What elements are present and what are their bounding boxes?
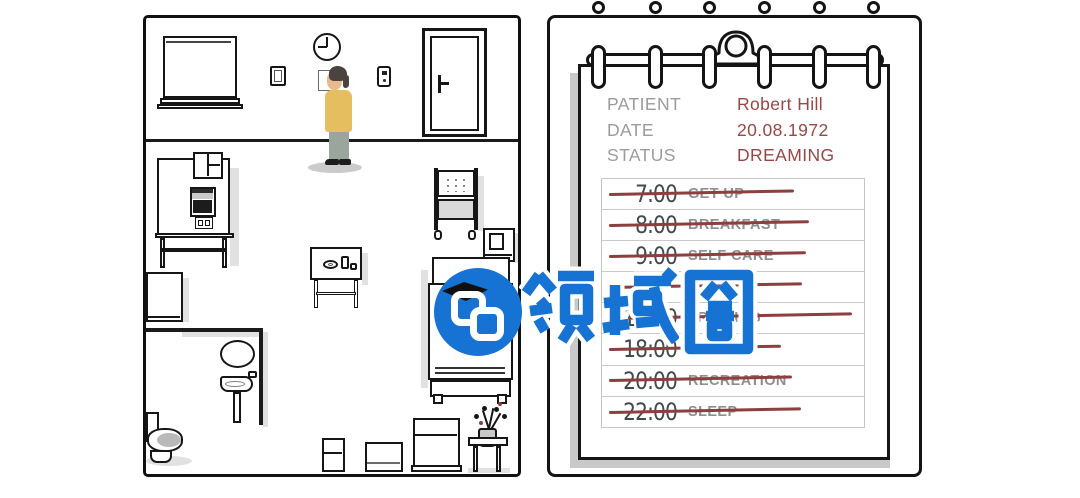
- binder-ring: [648, 45, 663, 89]
- toilet-base: [150, 450, 172, 463]
- stool-leg: [496, 446, 501, 472]
- stool-top: [468, 437, 508, 446]
- storage-box-wide[interactable]: [365, 442, 403, 472]
- board-shadow-bottom: [578, 460, 890, 468]
- box-line: [367, 462, 400, 464]
- machine-screen-unit[interactable]: [190, 187, 216, 217]
- binder-ring-top: [867, 1, 880, 14]
- small-item[interactable]: [350, 263, 357, 270]
- picture-frame-inner: [274, 70, 282, 82]
- cabinet-top-line: [415, 434, 457, 436]
- machine-screen: [193, 200, 212, 213]
- storage-box-small[interactable]: [322, 438, 345, 472]
- machine-button[interactable]: [198, 220, 204, 226]
- cup[interactable]: [341, 256, 349, 269]
- person-sweater: [325, 90, 352, 132]
- watermark-char-ling: [519, 260, 599, 360]
- binder-ring: [591, 45, 606, 89]
- nightstand-shadow: [515, 233, 518, 263]
- nightstand-drawer-line: [485, 254, 512, 256]
- patient-label: PATIENT: [607, 94, 737, 115]
- blanket-line: [435, 372, 505, 374]
- nightstand-frame: [489, 233, 504, 250]
- plant-leaf: [474, 414, 479, 419]
- watermark-char-quan: [679, 260, 759, 360]
- plant-leaf: [494, 407, 499, 412]
- side-table-crossbar: [316, 292, 356, 295]
- bathroom-mirror[interactable]: [220, 340, 255, 368]
- side-table[interactable]: [310, 247, 362, 280]
- machine-stand-crossbar: [162, 248, 225, 252]
- machine-button[interactable]: [205, 220, 211, 226]
- binder-ring: [866, 45, 881, 89]
- cart-wheel: [434, 230, 442, 240]
- status-value: DREAMING: [737, 145, 867, 166]
- watermark-square: [470, 307, 504, 341]
- door-handle-stub: [441, 82, 449, 85]
- storage-cabinet[interactable]: [413, 418, 460, 468]
- fridge-cabinet[interactable]: [146, 272, 183, 322]
- patient-header: PATIENT Robert Hill DATE 20.08.1972 STAT…: [607, 94, 867, 166]
- person-hair-back: [343, 75, 349, 88]
- blanket-line: [435, 367, 505, 369]
- cart-top-tray[interactable]: [437, 170, 475, 197]
- person-shoe-front: [325, 159, 339, 165]
- switch-toggle: [382, 71, 387, 76]
- machine-top-box[interactable]: [193, 152, 223, 179]
- top-box-shelf: [209, 164, 220, 166]
- sink-basin[interactable]: [220, 376, 253, 392]
- schedule-row: 7:00 GET UP: [602, 179, 864, 210]
- binder-ring: [702, 45, 717, 89]
- plant-flower: [498, 402, 502, 406]
- machine-stand-leg: [222, 238, 227, 268]
- watermark-char-yu: [599, 260, 679, 360]
- sink-pedestal: [233, 392, 241, 423]
- bathroom-top-wall-shadow: [182, 332, 263, 337]
- screen-band: [192, 193, 213, 199]
- clock-hour-hand: [318, 46, 327, 49]
- switch-dot: [383, 79, 386, 82]
- sink-faucet: [248, 371, 257, 378]
- sink-bowl-line: [225, 381, 245, 387]
- schedule-row: 22:00 SLEEP: [602, 397, 864, 428]
- cabinet-shadow: [183, 278, 189, 322]
- cart-wheel: [468, 230, 476, 240]
- cabinet-line: [148, 316, 180, 318]
- plate-center: [328, 263, 333, 266]
- watermark-text: [519, 260, 759, 360]
- status-label: STATUS: [607, 145, 737, 166]
- binder-ring-top: [649, 1, 662, 14]
- machine-buttons[interactable]: [195, 217, 213, 229]
- side-table-shadow: [362, 253, 368, 285]
- window-blind[interactable]: [163, 36, 237, 98]
- binder-ring-top: [758, 1, 771, 14]
- schedule-row: 20:00 RECREATION: [602, 366, 864, 397]
- machine-shadow: [230, 168, 239, 266]
- room-panel: [143, 15, 521, 477]
- patient-value: Robert Hill: [737, 94, 867, 115]
- wall-clock[interactable]: [313, 33, 341, 61]
- door[interactable]: [422, 28, 487, 137]
- cart-lower-shelf[interactable]: [437, 199, 475, 220]
- binder-ring-top: [592, 1, 605, 14]
- plant-leaf: [482, 406, 487, 411]
- box-line: [324, 452, 342, 454]
- person-leg-pants: [329, 128, 349, 162]
- date-value: 20.08.1972: [737, 120, 867, 141]
- storage-cabinet-base: [411, 465, 462, 472]
- watermark-logo: [434, 268, 522, 356]
- bed-shadow: [421, 270, 428, 388]
- light-switch[interactable]: [377, 66, 391, 87]
- person-shoe-back: [339, 159, 351, 165]
- bed-foot: [433, 394, 443, 404]
- binder-ring-top: [813, 1, 826, 14]
- blind-top-rail: [166, 41, 231, 43]
- stool-leg: [473, 446, 478, 472]
- plant-flower: [479, 421, 483, 425]
- date-label: DATE: [607, 120, 737, 141]
- plant-leaf: [502, 414, 507, 419]
- toilet-seat: [157, 433, 181, 447]
- cart-shadow: [478, 176, 484, 231]
- tray-speckles: [444, 177, 470, 192]
- machine-stand-leg: [160, 238, 165, 268]
- schedule-row: 8:00 BREAKFAST: [602, 210, 864, 241]
- picture-frame[interactable]: [270, 66, 286, 86]
- window-sill-base: [157, 104, 243, 109]
- binder-ring: [757, 45, 772, 89]
- bathroom-right-wall-shadow: [263, 332, 268, 427]
- toilet[interactable]: [147, 428, 183, 452]
- binder-ring: [812, 45, 827, 89]
- binder-ring-top: [703, 1, 716, 14]
- patient-figure[interactable]: [322, 62, 358, 168]
